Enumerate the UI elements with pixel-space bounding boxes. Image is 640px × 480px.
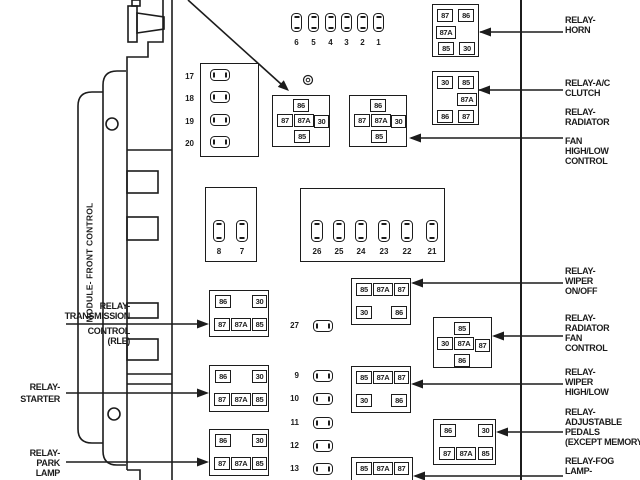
module-tab <box>127 303 158 318</box>
pin-30: 30 <box>252 434 267 447</box>
arrowhead-transmission <box>197 320 209 329</box>
label-relay-rad-fan-high-low-top: RELAY- RADIATOR <box>565 107 609 127</box>
fuse-7 <box>236 220 248 242</box>
label-relay-wiper-on-off: RELAY- WIPER ON/OFF <box>565 266 597 296</box>
label-relay-wiper-high-low: RELAY- WIPER HIGH/LOW <box>565 367 609 397</box>
fuse-6 <box>291 13 302 32</box>
pin-30: 30 <box>437 76 453 89</box>
pin-85: 85 <box>356 371 372 384</box>
pin-85: 85 <box>356 283 372 296</box>
pin-87A: 87A <box>373 371 393 384</box>
fuse-label-11: 11 <box>283 417 299 429</box>
module-hole-top <box>106 118 118 130</box>
pin-87A: 87A <box>371 114 391 127</box>
fuse-13 <box>313 463 333 475</box>
pin-30: 30 <box>356 394 372 407</box>
pin-87A: 87A <box>373 283 393 296</box>
fuse-label-22: 22 <box>399 246 415 258</box>
relay-box-a: 86 87 87A 30 85 <box>272 95 330 147</box>
label-relay-transmission-top: RELAY- TRANSMISSION <box>10 301 130 321</box>
relay-box-horn: 87 86 87A 85 30 <box>432 4 479 57</box>
fuse-label-13: 13 <box>283 463 299 475</box>
fuse-26 <box>311 220 323 242</box>
relay-box-starter: 86 30 87 87A 85 <box>209 365 269 412</box>
pin-86: 86 <box>215 434 231 447</box>
fuse-label-4: 4 <box>323 37 338 49</box>
fuse-label-24: 24 <box>353 246 369 258</box>
relay-box-rad-fan-control: 85 30 87A 87 86 <box>433 317 492 368</box>
relay-box-park-lamp: 86 30 87 87A 85 <box>209 429 269 476</box>
fuse-label-8: 8 <box>212 246 226 258</box>
fuse-5 <box>308 13 319 32</box>
fuse-label-5: 5 <box>306 37 321 49</box>
fuse-21 <box>426 220 438 242</box>
pin-87: 87 <box>277 114 293 127</box>
pin-30: 30 <box>356 306 372 319</box>
fuse-label-9: 9 <box>283 370 299 382</box>
label-relay-horn: RELAY- HORN <box>565 15 595 35</box>
pin-87: 87 <box>354 114 370 127</box>
fuse-label-26: 26 <box>309 246 325 258</box>
fuse-label-19: 19 <box>180 116 194 128</box>
label-relay-park-lamp: RELAY- PARK LAMP <box>0 448 60 478</box>
relay-box-fog-lamp: 85 87A 87 <box>351 457 413 480</box>
pin-86: 86 <box>215 295 231 308</box>
fuse-label-6: 6 <box>289 37 304 49</box>
pin-85: 85 <box>294 130 310 143</box>
arrowhead-ac-clutch <box>478 86 490 95</box>
module-tab <box>127 217 158 240</box>
fuse-12 <box>313 440 333 452</box>
module-bracket-wedge <box>137 13 164 33</box>
pin-86: 86 <box>391 306 407 319</box>
label-relay-adjustable-pedals: RELAY- ADJUSTABLE PEDALS (EXCEPT MEMORY) <box>565 407 640 447</box>
relay-box-wiper-on-off: 85 87A 87 30 86 <box>351 278 411 325</box>
pin-86: 86 <box>454 354 470 367</box>
module-band-lines <box>127 374 172 384</box>
pin-87: 87 <box>214 393 230 406</box>
pin-87: 87 <box>439 447 455 460</box>
arrowhead-wiper-on-off <box>411 279 423 288</box>
fuse-23 <box>378 220 390 242</box>
pin-87: 87 <box>458 110 474 123</box>
pin-85: 85 <box>478 447 493 460</box>
pin-30: 30 <box>252 295 267 308</box>
fuse-label-23: 23 <box>376 246 392 258</box>
pin-85: 85 <box>252 393 267 406</box>
pin-87: 87 <box>214 457 230 470</box>
label-relay-starter: RELAY- STARTER <box>0 381 60 405</box>
fuse-label-20: 20 <box>180 138 194 150</box>
fuse-9 <box>313 370 333 382</box>
pin-87A: 87A <box>457 93 477 106</box>
fuse-label-7: 7 <box>235 246 249 258</box>
fuse-3 <box>341 13 352 32</box>
pin-87: 87 <box>437 9 453 22</box>
pin-30: 30 <box>314 115 329 128</box>
arrowhead-park-lamp <box>197 458 209 467</box>
fuse-label-21: 21 <box>424 246 440 258</box>
fuse-11 <box>313 417 333 429</box>
pin-85: 85 <box>371 130 387 143</box>
module-bottom-notch <box>127 470 140 480</box>
fuse-label-1: 1 <box>371 37 386 49</box>
fuse-box-diagram: MODULE- FRONT CONTROL 6 5 4 3 2 1 17 18 … <box>0 0 640 480</box>
relay-box-wiper-high-low: 85 87A 87 30 86 <box>351 366 411 413</box>
pin-87A: 87A <box>454 337 474 350</box>
label-relay-ac-clutch: RELAY-A/C CLUTCH <box>565 78 610 98</box>
pin-85: 85 <box>438 42 454 55</box>
fuse-label-17: 17 <box>180 71 194 83</box>
fuse-2 <box>357 13 368 32</box>
pin-87A: 87A <box>231 393 251 406</box>
arrowhead-horn <box>479 28 491 37</box>
label-relay-transmission-bottom: CONTROL (RLE) <box>10 326 130 346</box>
pin-87: 87 <box>475 339 490 352</box>
pin-30: 30 <box>252 370 267 383</box>
pin-87A: 87A <box>231 457 251 470</box>
fuse-label-25: 25 <box>331 246 347 258</box>
pin-87A: 87A <box>456 447 476 460</box>
fuse-20 <box>210 136 230 148</box>
arrowhead-wiper-high-low <box>411 380 423 389</box>
pin-30: 30 <box>437 337 453 350</box>
pin-86: 86 <box>215 370 231 383</box>
fuse-label-10: 10 <box>283 393 299 405</box>
fuse-22 <box>401 220 413 242</box>
pin-85: 85 <box>356 462 372 475</box>
pin-85: 85 <box>252 457 267 470</box>
fuse-10 <box>313 393 333 405</box>
relay-box-rad-fan-high-low: 86 87 87A 30 85 <box>349 95 407 147</box>
pin-87A: 87A <box>231 318 251 331</box>
pin-30: 30 <box>459 42 475 55</box>
fuse-4 <box>325 13 336 32</box>
module-tab <box>127 339 158 360</box>
pin-30: 30 <box>391 115 406 128</box>
fuse-label-27: 27 <box>283 320 299 332</box>
pin-86: 86 <box>440 424 456 437</box>
screw-icon-center <box>306 78 310 82</box>
arrowhead-rad-fan-control <box>492 332 504 341</box>
fuse-label-3: 3 <box>339 37 354 49</box>
label-relay-rad-fan-control: RELAY- RADIATOR FAN CONTROL <box>565 313 609 353</box>
module-hole-bottom <box>108 408 120 420</box>
pin-87: 87 <box>394 371 409 384</box>
pin-86: 86 <box>293 99 309 112</box>
label-relay-rad-fan-high-low-bottom: FAN HIGH/LOW CONTROL <box>565 136 609 166</box>
fuse-label-12: 12 <box>283 440 299 452</box>
arrowhead-rad-fan-high-low <box>409 134 421 143</box>
fuse-18 <box>210 91 230 103</box>
relay-box-transmission: 86 30 87 87A 85 <box>209 290 269 337</box>
fuse-25 <box>333 220 345 242</box>
fuse-19 <box>210 114 230 126</box>
pin-87A: 87A <box>294 114 314 127</box>
pin-86: 86 <box>391 394 407 407</box>
fuse-27 <box>313 320 333 332</box>
pin-87A: 87A <box>436 26 456 39</box>
pin-87: 87 <box>214 318 230 331</box>
screw-icon <box>304 76 313 85</box>
pin-85: 85 <box>454 322 470 335</box>
module-tab <box>127 171 158 193</box>
pin-30: 30 <box>478 424 493 437</box>
relay-box-adjustable-pedals: 86 30 87 87A 85 <box>433 419 496 465</box>
fuse-label-18: 18 <box>180 93 194 105</box>
arrowhead-adjustable-pedals <box>496 428 508 437</box>
arrowhead-starter <box>197 389 209 398</box>
pin-87: 87 <box>394 283 409 296</box>
fuse-8 <box>213 220 225 242</box>
fuse-1 <box>373 13 384 32</box>
pin-86: 86 <box>437 110 453 123</box>
module-bracket-bar <box>128 6 137 42</box>
pin-85: 85 <box>458 76 474 89</box>
pin-87: 87 <box>394 462 409 475</box>
pin-86: 86 <box>458 9 474 22</box>
pin-86: 86 <box>370 99 386 112</box>
module-bracket-nub <box>132 0 140 6</box>
fuse-17 <box>210 69 230 81</box>
fuse-24 <box>355 220 367 242</box>
pin-85: 85 <box>252 318 267 331</box>
arrowhead-fog-lamp <box>413 472 425 480</box>
relay-box-ac-clutch: 30 85 87A 86 87 <box>432 71 479 125</box>
label-relay-fog-lamp: RELAY-FOG LAMP- <box>565 456 614 476</box>
pin-87A: 87A <box>373 462 393 475</box>
fuse-label-2: 2 <box>355 37 370 49</box>
